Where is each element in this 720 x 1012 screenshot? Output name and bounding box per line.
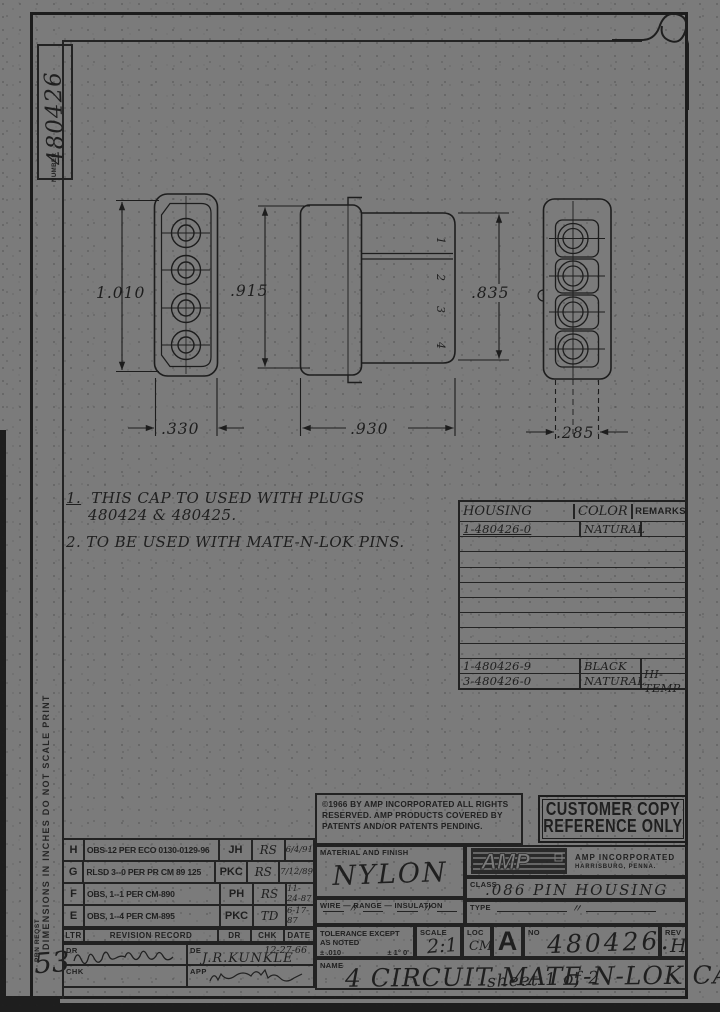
pin-number-2: 2 [434, 273, 447, 281]
company-name: AMP INCORPORATED [575, 853, 675, 862]
de-date: 12-27-66 [264, 945, 307, 956]
number-label: NUMBER [52, 168, 58, 182]
svg-text:AMP: AMP [480, 849, 530, 874]
revision-row-h: H OBS-12 PER ECO 0130-0129-96 JH RS 6/4/… [64, 840, 313, 862]
type-box: TYPE 〃 [465, 900, 688, 925]
drawing-number: 480426. [547, 926, 672, 959]
note-1-continued: 480424 & 480425. [66, 507, 411, 524]
housing-row [460, 568, 686, 583]
size-letter-box: A [492, 925, 523, 958]
revision-rows: H OBS-12 PER ECO 0130-0129-96 JH RS 6/4/… [62, 838, 315, 928]
front-view [155, 194, 218, 376]
customer-copy-stamp: CUSTOMER COPY REFERENCE ONLY [538, 795, 688, 843]
no-label: NO [528, 928, 540, 937]
dim-side-width: .930 [350, 420, 389, 438]
side-view [301, 198, 456, 383]
dr-cell: DR [64, 945, 188, 964]
amp-logo: AMP [471, 848, 567, 874]
chk-cell: CHK [64, 966, 188, 986]
material-value: NYLON [317, 856, 464, 892]
drawing-views: 1 2 3 4 [62, 182, 662, 472]
type-label: TYPE [470, 903, 491, 912]
drawing-notes: 1. THIS CAP TO USED WITH PLUGS 480424 & … [66, 490, 411, 551]
sheet-note: sheet 1 of 2 [487, 968, 601, 992]
pin-number-3: 3 [434, 306, 447, 313]
dim-side-height: .915 [230, 282, 269, 300]
scale-value: 2:1 [426, 934, 458, 958]
revision-row-g: G RLSD 3--0 PER PR CM 89 125 PKC RS 7/12… [64, 862, 313, 884]
dim-front-height: 1.010 [96, 284, 145, 302]
color-header: COLOR [575, 504, 633, 519]
stamp-line-2: REFERENCE ONLY [543, 817, 682, 838]
part-number: 480426 [40, 71, 69, 166]
housing-row: 3-480426-0 NATURAL HI-TEMP [460, 674, 686, 688]
revision-record-header: REVISION RECORD [85, 930, 219, 941]
tolerance-angle: ± 1° 0' [387, 948, 409, 957]
engineering-drawing-sheet: { "sheet": { "number_label": "NUMBER", "… [0, 0, 720, 1012]
loc-box: LOC CM [462, 925, 492, 958]
material-box: MATERIAL AND FINISH NYLON [315, 845, 465, 898]
pin-number-1: 1 [434, 237, 447, 244]
tolerance-value: ± .010 [320, 948, 341, 957]
housing-header: HOUSING [460, 504, 575, 519]
housing-table-header: HOUSING COLOR REMARKS [460, 502, 686, 522]
part-number-box: NUMBER 480426 [37, 44, 73, 180]
drawn-designed-row: DR DE J.R.KUNKLE 12-27-66 [62, 943, 315, 966]
revision-header: LTR REVISION RECORD DR CHK DATE [62, 928, 315, 943]
folded-corner [612, 4, 712, 114]
size-letter: A [498, 926, 518, 957]
de-cell: DE J.R.KUNKLE 12-27-66 [188, 945, 313, 964]
dr-header: DR [219, 930, 252, 941]
company-box: AMP AMP INCORPORATED HARRISBURG, PENNA. [465, 845, 688, 877]
revision-row-e: E OBS, 1--4 PER CM-895 PKC TD 6-17-87 [64, 906, 313, 926]
de-label: DE [190, 946, 201, 955]
revision-row-f: F OBS, 1--1 PER CM-890 PH RS 11-24-87 [64, 884, 313, 906]
copyright-notice: ©1966 BY AMP INCORPORATED ALL RIGHTS RES… [315, 793, 523, 845]
app-signature-scribble [208, 969, 308, 985]
class-box: CLASS .086 PIN HOUSING [465, 877, 688, 900]
housing-row [460, 613, 686, 628]
housing-row [460, 598, 686, 613]
company-city: HARRISBURG, PENNA. [575, 864, 675, 870]
app-cell: APP [188, 966, 313, 986]
note-2-number: 2. [66, 533, 81, 551]
loc-value: CM [469, 939, 492, 954]
note-1-number: 1. [66, 489, 81, 507]
loc-label: LOC [467, 928, 484, 937]
scan-edge-corner [0, 996, 60, 1004]
material-label: MATERIAL AND FINISH [320, 848, 408, 857]
rev-value: H [670, 935, 687, 957]
housing-row [460, 537, 686, 552]
housing-row: 1-480426-0 NATURAL [460, 522, 686, 537]
scale-box: SCALE 2:1 [415, 925, 462, 958]
tolerance-box: TOLERANCE EXCEPT AS NOTED ± .010 ± 1° 0' [315, 925, 415, 958]
housing-color-table: HOUSING COLOR REMARKS 1-480426-0 NATURAL [458, 500, 688, 690]
name-label: NAME [320, 961, 343, 970]
scan-edge-left [0, 430, 6, 1012]
note-1: 1. THIS CAP TO USED WITH PLUGS [66, 490, 411, 507]
drawing-number-box: NO 480426. [523, 925, 660, 958]
check-approve-row: CHK APP [62, 966, 315, 988]
housing-row [460, 552, 686, 567]
chk-header: CHK [252, 930, 285, 941]
rear-view [538, 199, 611, 434]
dr-signature-scribble [72, 947, 182, 966]
app-label: APP [190, 967, 207, 976]
pin-number-4: 4 [434, 341, 447, 349]
class-value: .086 PIN HOUSING [485, 881, 668, 899]
remarks-header: REMARKS [633, 506, 686, 517]
note-2-text: TO BE USED WITH MATE-N-LOK PINS. [86, 533, 404, 551]
dim-body-height: .835 [471, 284, 510, 302]
dim-front-width: .330 [161, 420, 200, 438]
wire-range-insulation-box: WIRE — RANGE — INSULATION 〃 〃 [315, 898, 465, 925]
housing-row [460, 644, 686, 659]
note-2: 2. TO BE USED WITH MATE-N-LOK PINS. [66, 534, 411, 551]
top-margin-rule [62, 40, 642, 42]
scan-edge-bottom [0, 1003, 720, 1012]
dim-rear-width: .285 [556, 424, 595, 442]
note-1-text: THIS CAP TO USED WITH PLUGS [91, 489, 364, 507]
ltr-header: LTR [64, 930, 85, 941]
housing-row [460, 628, 686, 643]
rev-box: REV H [660, 925, 688, 958]
housing-row [460, 583, 686, 598]
chk-label: CHK [66, 967, 84, 976]
date-header: DATE [285, 930, 313, 941]
